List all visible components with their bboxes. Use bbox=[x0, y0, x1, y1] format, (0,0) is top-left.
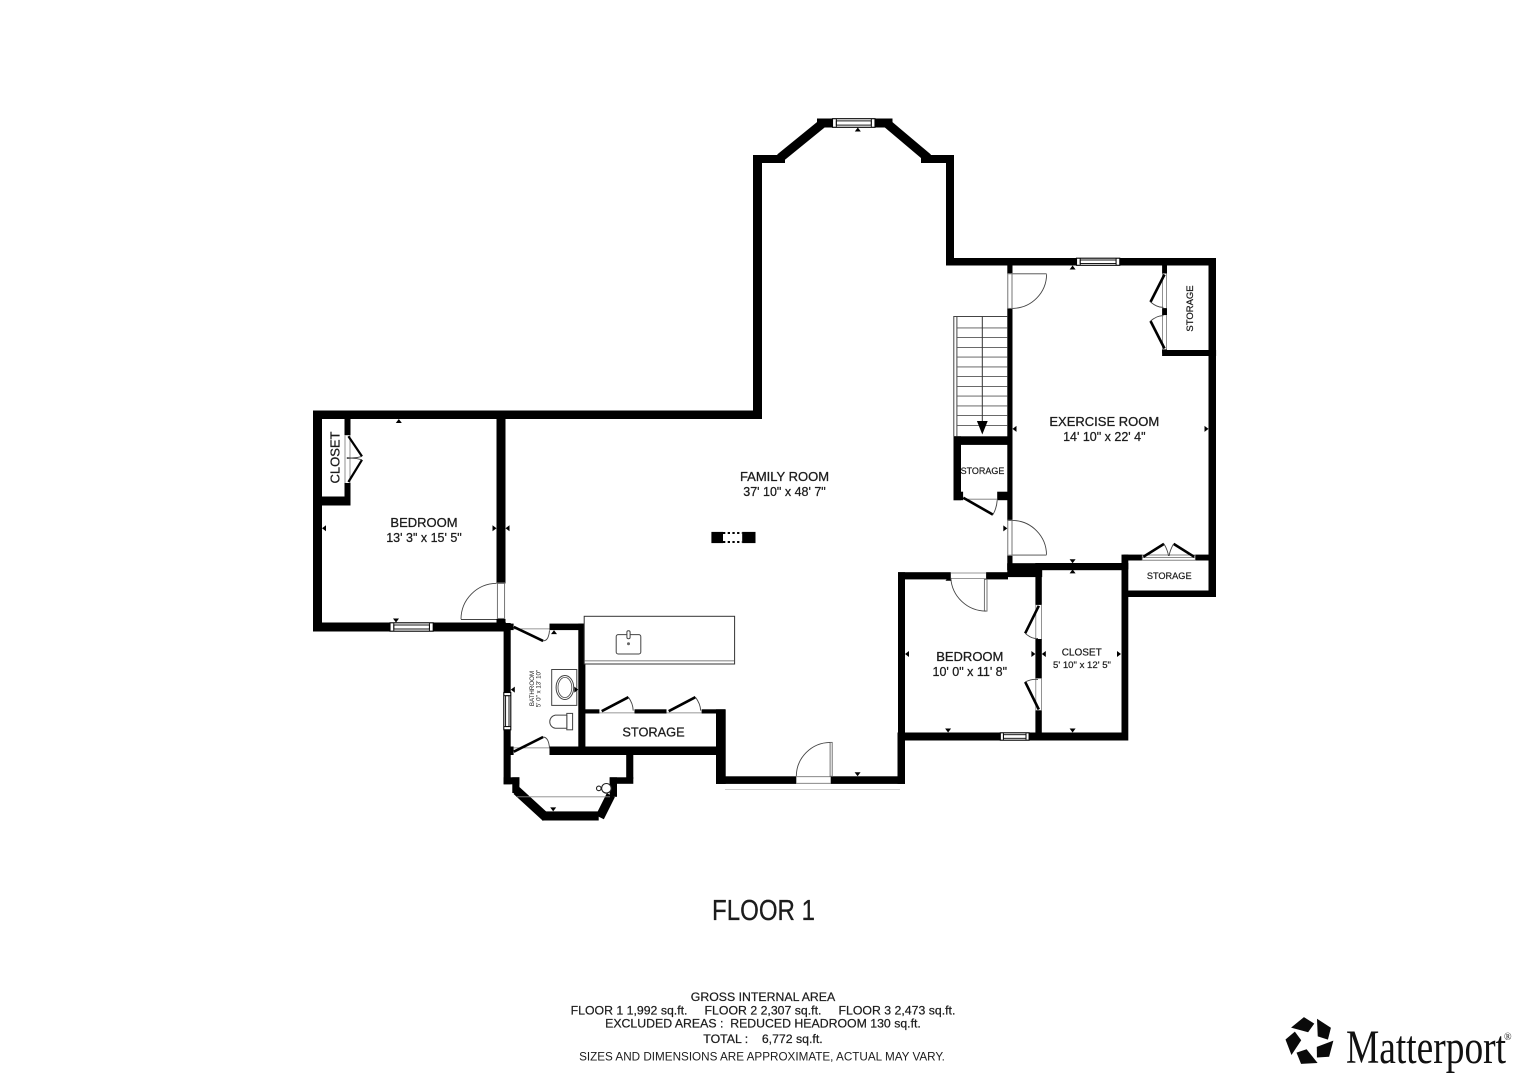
svg-text:13' 3" x 15' 5": 13' 3" x 15' 5" bbox=[386, 531, 462, 545]
svg-text:5' 10" x 12' 5": 5' 10" x 12' 5" bbox=[1053, 660, 1111, 671]
svg-text:14' 10" x 22' 4": 14' 10" x 22' 4" bbox=[1063, 430, 1145, 444]
svg-text:STORAGE: STORAGE bbox=[961, 466, 1005, 476]
svg-text:5' 0" x 13' 10": 5' 0" x 13' 10" bbox=[535, 670, 542, 707]
svg-text:SIZES AND DIMENSIONS ARE APPRO: SIZES AND DIMENSIONS ARE APPROXIMATE, AC… bbox=[579, 1051, 945, 1064]
svg-text:BEDROOM: BEDROOM bbox=[390, 515, 457, 530]
svg-text:FLOOR 1: FLOOR 1 bbox=[712, 895, 815, 927]
svg-text:CLOSET: CLOSET bbox=[327, 431, 342, 483]
svg-text:®: ® bbox=[1504, 1032, 1512, 1043]
svg-text:FAMILY ROOM: FAMILY ROOM bbox=[740, 469, 829, 484]
svg-text:10' 0" x 11' 8": 10' 0" x 11' 8" bbox=[933, 665, 1008, 679]
svg-text:EXERCISE ROOM: EXERCISE ROOM bbox=[1049, 414, 1159, 429]
svg-text:BEDROOM: BEDROOM bbox=[936, 649, 1003, 664]
svg-text:CLOSET: CLOSET bbox=[1062, 648, 1102, 659]
svg-text:FLOOR 1 1,992 sq.ft. FLOOR: FLOOR 1 1,992 sq.ft. FLOOR 2 2,307 sq.ft… bbox=[571, 1003, 956, 1017]
svg-text:37' 10" x 48' 7": 37' 10" x 48' 7" bbox=[743, 485, 825, 499]
svg-text:EXCLUDED AREAS : REDUCED HEAD: EXCLUDED AREAS : REDUCED HEADROOM 130 sq… bbox=[605, 1017, 921, 1031]
svg-text:GROSS INTERNAL AREA: GROSS INTERNAL AREA bbox=[691, 990, 836, 1004]
svg-text:STORAGE: STORAGE bbox=[1185, 285, 1196, 331]
svg-text:STORAGE: STORAGE bbox=[1147, 571, 1192, 581]
svg-text:Matterport: Matterport bbox=[1346, 1021, 1507, 1074]
svg-text:TOTAL : 6,772 sq.ft.: TOTAL : 6,772 sq.ft. bbox=[703, 1032, 822, 1046]
svg-text:STORAGE: STORAGE bbox=[622, 725, 684, 740]
